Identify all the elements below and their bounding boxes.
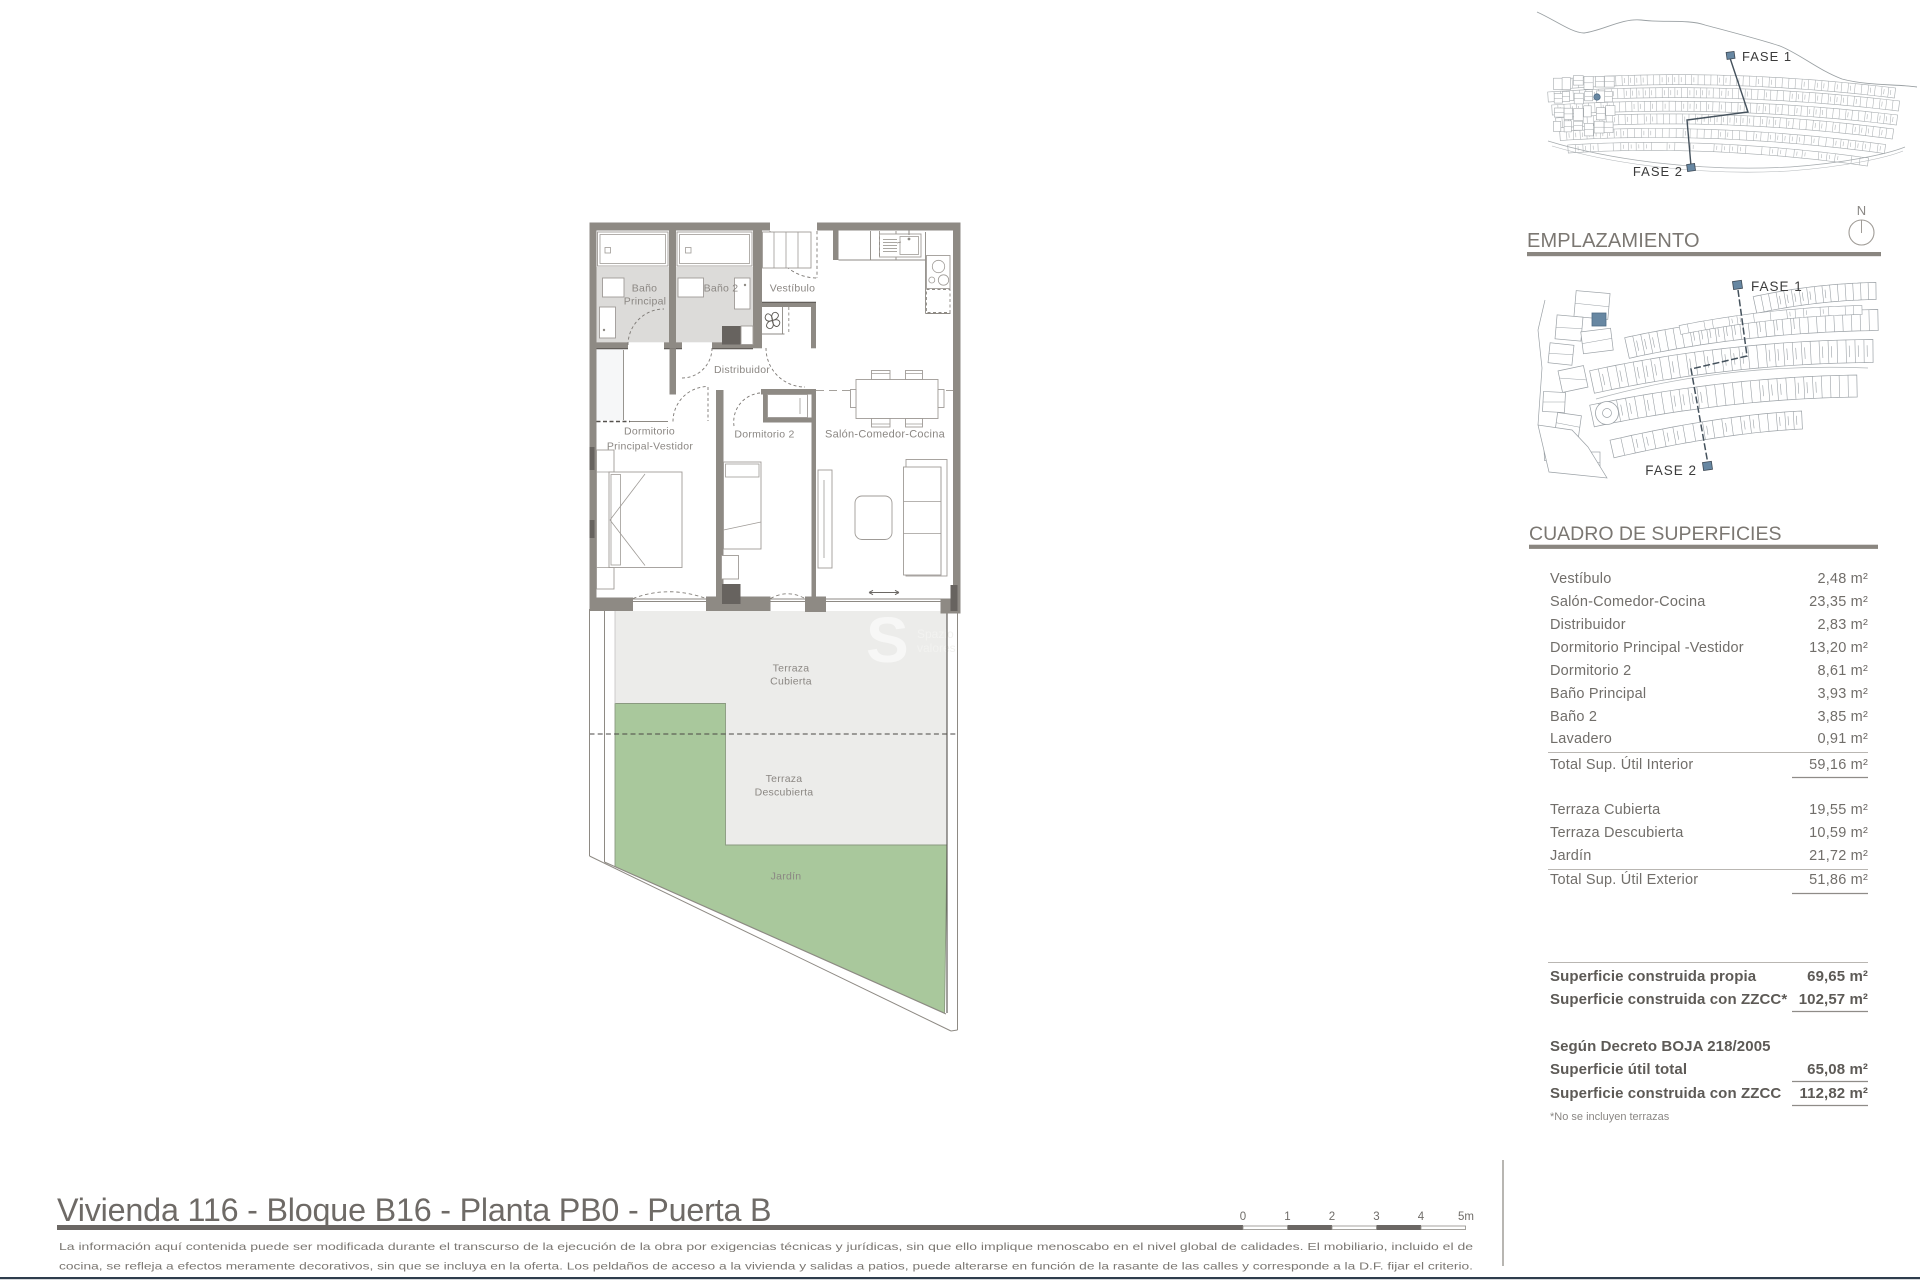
svg-text:102,57 m²: 102,57 m² — [1799, 991, 1868, 1008]
svg-text:valores: valores — [917, 641, 956, 655]
svg-text:S: S — [866, 604, 909, 676]
svg-text:Superficie construida propia: Superficie construida propia — [1550, 968, 1757, 985]
svg-text:4: 4 — [1418, 1211, 1425, 1223]
svg-text:2,48 m²: 2,48 m² — [1817, 571, 1868, 587]
svg-text:FASE 2: FASE 2 — [1633, 164, 1683, 179]
svg-text:Según Decreto BOJA 218/2005: Según Decreto BOJA 218/2005 — [1550, 1038, 1771, 1055]
svg-text:65,08 m²: 65,08 m² — [1807, 1061, 1868, 1078]
svg-text:Terraza: Terraza — [773, 663, 810, 675]
svg-text:FASE 1: FASE 1 — [1751, 279, 1803, 294]
svg-text:59,16 m²: 59,16 m² — [1809, 757, 1868, 773]
svg-text:EMPLAZAMIENTO: EMPLAZAMIENTO — [1527, 230, 1700, 252]
svg-text:0: 0 — [1240, 1211, 1246, 1223]
svg-text:19,55 m²: 19,55 m² — [1809, 802, 1868, 818]
svg-text:1: 1 — [1284, 1211, 1290, 1223]
svg-text:Distribuidor: Distribuidor — [714, 364, 770, 376]
svg-text:10,59 m²: 10,59 m² — [1809, 825, 1868, 841]
svg-text:23,35 m²: 23,35 m² — [1809, 594, 1868, 610]
svg-text:Distribuidor: Distribuidor — [1550, 617, 1626, 633]
svg-text:Dormitorio 2: Dormitorio 2 — [1550, 663, 1631, 679]
svg-text:Superficie construida con ZZCC: Superficie construida con ZZCC — [1550, 1085, 1781, 1102]
svg-text:Principal-Vestidor: Principal-Vestidor — [607, 441, 693, 453]
svg-text:21,72 m²: 21,72 m² — [1809, 848, 1868, 864]
svg-text:Lavadero: Lavadero — [1550, 731, 1612, 747]
svg-text:CUADRO DE SUPERFICIES: CUADRO DE SUPERFICIES — [1529, 523, 1781, 545]
svg-text:Total Sup. Útil Interior: Total Sup. Útil Interior — [1550, 756, 1693, 773]
svg-text:N: N — [1857, 203, 1866, 218]
svg-text:Superficie construida con ZZCC: Superficie construida con ZZCC* — [1550, 991, 1787, 1008]
svg-text:51,86 m²: 51,86 m² — [1809, 872, 1868, 888]
svg-text:Salón-Comedor-Cocina: Salón-Comedor-Cocina — [1550, 594, 1706, 610]
svg-text:La información aquí contenida: La información aquí contenida puede ser … — [59, 1241, 1473, 1253]
svg-text:13,20 m²: 13,20 m² — [1809, 640, 1868, 656]
svg-text:112,82 m²: 112,82 m² — [1800, 1085, 1868, 1102]
svg-text:Principal: Principal — [624, 296, 667, 308]
svg-text:Dormitorio: Dormitorio — [624, 426, 675, 438]
svg-text:5m: 5m — [1458, 1211, 1474, 1223]
svg-text:3: 3 — [1373, 1211, 1379, 1223]
svg-text:*No se incluyen terrazas: *No se incluyen terrazas — [1550, 1111, 1670, 1123]
svg-text:2,83 m²: 2,83 m² — [1817, 617, 1868, 633]
svg-text:Terraza Cubierta: Terraza Cubierta — [1550, 802, 1661, 818]
svg-text:Cubierta: Cubierta — [770, 676, 812, 688]
svg-text:Spazio: Spazio — [917, 627, 954, 641]
svg-text:69,65 m²: 69,65 m² — [1807, 968, 1868, 985]
svg-text:Jardín: Jardín — [771, 871, 802, 883]
svg-text:Vestíbulo: Vestíbulo — [1550, 571, 1611, 587]
svg-text:Vestíbulo: Vestíbulo — [770, 283, 815, 295]
svg-text:Dormitorio Principal -Vestidor: Dormitorio Principal -Vestidor — [1550, 640, 1744, 656]
svg-text:Superficie útil total: Superficie útil total — [1550, 1061, 1687, 1078]
svg-text:3,85 m²: 3,85 m² — [1817, 709, 1868, 725]
svg-text:Baño: Baño — [632, 283, 658, 295]
svg-text:3,93 m²: 3,93 m² — [1817, 686, 1868, 702]
svg-text:Salón-Comedor-Cocina: Salón-Comedor-Cocina — [825, 429, 946, 441]
svg-text:8,61 m²: 8,61 m² — [1817, 663, 1868, 679]
svg-text:Terraza Descubierta: Terraza Descubierta — [1550, 825, 1684, 841]
svg-text:Baño 2: Baño 2 — [704, 283, 739, 295]
svg-text:Total Sup. Útil Exterior: Total Sup. Útil Exterior — [1550, 871, 1698, 888]
svg-text:Baño 2: Baño 2 — [1550, 709, 1597, 725]
svg-text:Descubierta: Descubierta — [755, 787, 814, 799]
svg-text:2: 2 — [1329, 1211, 1335, 1223]
svg-text:Dormitorio 2: Dormitorio 2 — [734, 429, 794, 441]
svg-text:Jardín: Jardín — [1550, 848, 1592, 864]
svg-text:FASE 2: FASE 2 — [1645, 463, 1697, 478]
svg-text:Baño Principal: Baño Principal — [1550, 686, 1646, 702]
svg-text:Terraza: Terraza — [766, 773, 803, 785]
svg-text:Vivienda 116 - Bloque B16 - Pl: Vivienda 116 - Bloque B16 - Planta PB0 -… — [57, 1192, 771, 1228]
svg-text:0,91 m²: 0,91 m² — [1817, 731, 1868, 747]
svg-text:FASE 1: FASE 1 — [1742, 49, 1792, 64]
svg-text:cocina, se refleja a efectos m: cocina, se refleja a efectos meramente d… — [59, 1261, 1473, 1273]
